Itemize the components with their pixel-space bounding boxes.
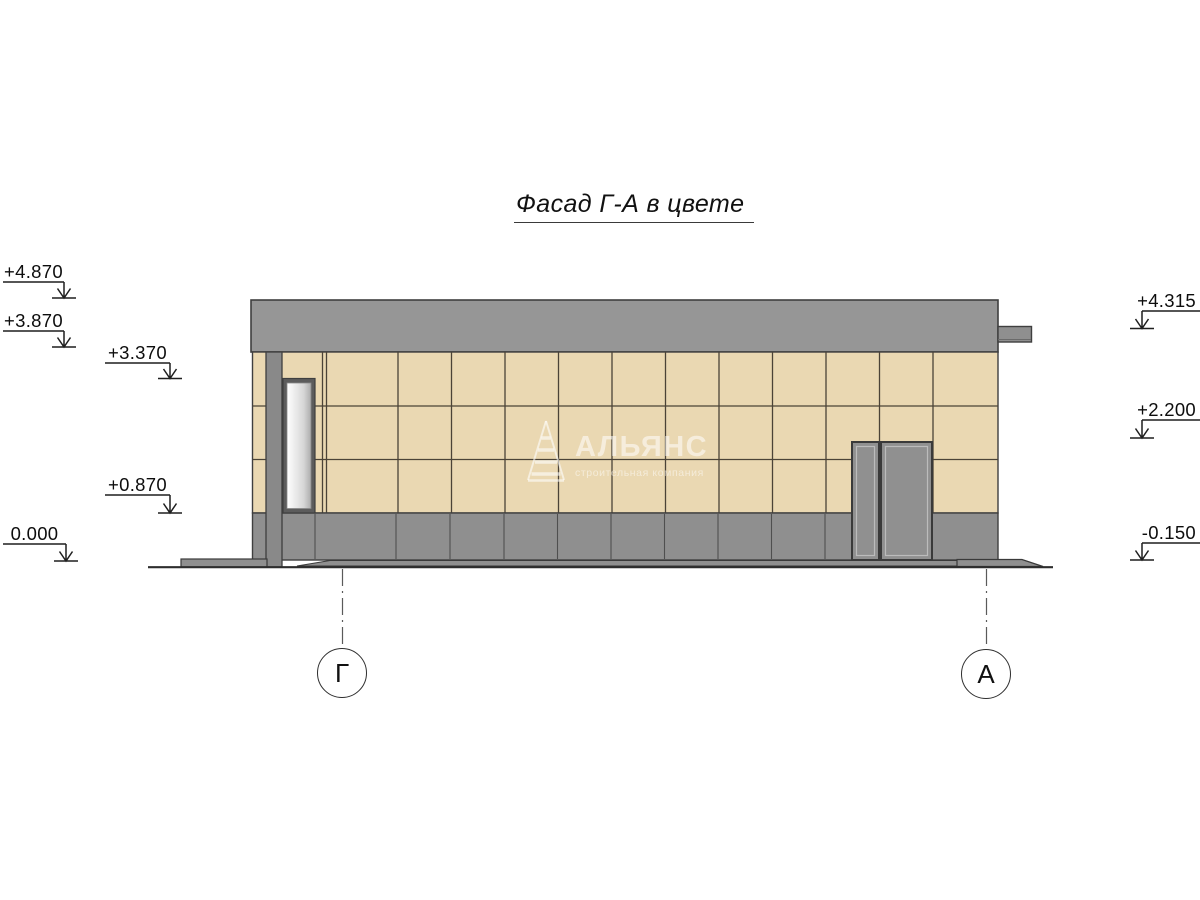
front-pavement	[297, 561, 957, 567]
elevation-mark-right-1: +4.315	[1130, 291, 1200, 331]
elevation-mark-left-3: +3.370	[105, 343, 189, 381]
page-title: Фасад Г-А в цвете	[514, 190, 754, 223]
facade-drawing-sheet: АЛЬЯНС строительная компания Фасад Г-А в…	[0, 0, 1200, 900]
column-pilaster	[266, 352, 282, 567]
axis-label: Г	[335, 660, 349, 686]
elevation-value: +2.200	[1130, 400, 1196, 419]
axis-bubble-g: Г	[317, 648, 367, 698]
elevation-mark-left-1: +4.870	[3, 262, 81, 301]
elevation-mark-right-2: +2.200	[1130, 400, 1200, 440]
elevation-arrow-icon	[3, 330, 81, 350]
elevation-value: +4.870	[3, 262, 64, 281]
axis-label: А	[977, 661, 994, 687]
elevation-arrow-icon	[1130, 419, 1200, 440]
entrance-door	[852, 442, 932, 560]
elevation-value: +3.870	[3, 311, 64, 330]
window-glass	[287, 383, 311, 509]
elevation-value: +3.370	[105, 343, 170, 362]
elevation-value: 0.000	[3, 524, 66, 543]
parapet-band	[251, 300, 998, 352]
elevation-arrow-icon	[105, 494, 189, 515]
window	[283, 379, 315, 514]
elevation-value: +4.315	[1130, 291, 1196, 310]
elevation-arrow-icon	[3, 543, 81, 564]
elevation-value: -0.150	[1130, 523, 1196, 542]
axis-bubble-a: А	[961, 649, 1011, 699]
elevation-mark-left-4: +0.870	[105, 475, 189, 515]
right-ramp	[957, 560, 1043, 567]
left-step	[181, 559, 267, 567]
elevation-arrow-icon	[1130, 542, 1200, 562]
elevation-arrow-icon	[105, 362, 189, 381]
elevation-arrow-icon	[3, 281, 81, 301]
elevation-value: +0.870	[105, 475, 170, 494]
elevation-mark-right-3: -0.150	[1130, 523, 1200, 562]
axis-leaders	[343, 569, 987, 649]
elevation-mark-left-5: 0.000	[3, 524, 81, 564]
facade-elevation-drawing	[0, 0, 1200, 900]
elevation-mark-left-2: +3.870	[3, 311, 81, 350]
elevation-arrow-icon	[1130, 310, 1200, 331]
